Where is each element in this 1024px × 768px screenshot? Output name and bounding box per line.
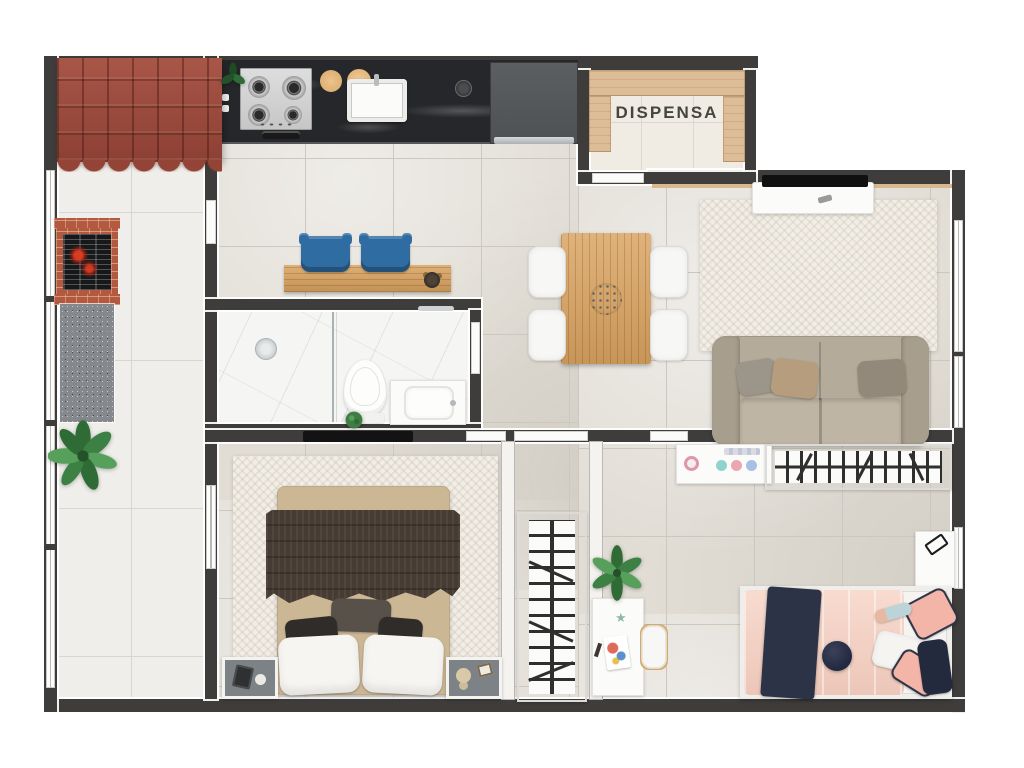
pantry-label: DISPENSA <box>589 96 745 130</box>
pantry-shelf-top <box>589 70 745 96</box>
wardrobe-rack-vertical <box>517 512 587 702</box>
desk-chair <box>641 625 667 669</box>
dining-chair <box>528 309 566 361</box>
makeup-item-pink <box>731 460 742 471</box>
nightstand-basket <box>456 668 471 683</box>
oven-handle <box>262 131 300 139</box>
wall-pantry-left <box>578 70 589 172</box>
bar-decor <box>424 272 440 288</box>
table-centerpiece <box>590 283 622 315</box>
towel-bar <box>418 306 454 311</box>
makeup-item-teal <box>716 460 727 471</box>
hanger-bar <box>856 453 873 481</box>
sofa-pillow <box>770 357 820 399</box>
bed2-throw <box>760 586 822 699</box>
sofa-back-seam <box>819 342 821 400</box>
desk-plant <box>588 544 646 602</box>
makeup-bottles <box>724 448 760 455</box>
bathroom-faucet <box>450 400 456 406</box>
nightstand-cup <box>255 674 266 685</box>
door-bedroom2 <box>650 431 688 441</box>
dining-chair <box>650 246 688 298</box>
hanger-bar <box>528 560 573 582</box>
bed2-pom <box>822 641 852 671</box>
bed-blanket <box>266 510 460 606</box>
makeup-vanity <box>676 444 772 484</box>
gas-cooktop <box>240 68 312 130</box>
bed-pillow <box>278 634 361 696</box>
shower-glass <box>332 312 334 422</box>
bathroom-sink <box>404 386 454 420</box>
dining-chair <box>650 309 688 361</box>
makeup-item-blue <box>746 460 757 471</box>
hanger-bar <box>528 620 573 642</box>
refrigerator <box>490 62 578 144</box>
wall-closet-left <box>502 442 514 699</box>
magazine <box>603 634 631 670</box>
window-bedroom2-right <box>954 527 963 589</box>
door-bathroom <box>471 322 480 374</box>
door-master-bedroom <box>466 431 506 441</box>
spice-bowl <box>455 80 472 97</box>
hanger-bar <box>796 453 813 481</box>
refrigerator-handle <box>494 137 574 144</box>
bar-stool <box>301 236 350 272</box>
shower-head <box>255 338 277 360</box>
light-switches <box>222 94 229 101</box>
floor-plan-render: DISPENSA <box>0 0 1024 768</box>
grill-grate <box>63 234 111 290</box>
dining-chair <box>528 246 566 298</box>
star-decor: ★ <box>615 610 627 626</box>
wall-bottom <box>44 699 965 712</box>
burner <box>248 76 270 98</box>
cooktop-knobs <box>258 122 294 127</box>
cutting-board <box>320 70 342 92</box>
sink-faucet <box>374 74 379 86</box>
sofa-seat-cushions <box>740 398 901 444</box>
sofa-pillow <box>857 358 907 397</box>
wardrobe-rack-horizontal <box>765 444 952 490</box>
bathroom-plant <box>344 410 364 430</box>
vanity-mirror <box>684 456 699 471</box>
bar-stool <box>361 236 410 272</box>
nightstand <box>446 657 502 699</box>
door-pantry <box>592 173 644 183</box>
window-living-right-2 <box>954 356 963 428</box>
door-closet-hall <box>514 431 588 441</box>
living-tv <box>762 175 868 187</box>
door-service <box>206 200 216 244</box>
roof-scallop-edge <box>57 160 222 172</box>
hanger-bar <box>528 661 574 682</box>
living-rug <box>700 200 937 351</box>
wall-pantry-right <box>745 70 756 172</box>
hanger-bar <box>909 453 925 481</box>
burner <box>282 76 306 100</box>
bed-pillow <box>362 634 445 696</box>
window-living-right-1 <box>954 220 963 352</box>
window-left-mullion <box>46 544 55 550</box>
kitchen-plant <box>218 62 248 90</box>
granite-counter <box>60 304 114 422</box>
red-tile-roof <box>57 58 222 162</box>
window-bedroom-left <box>206 485 216 569</box>
bedroom-tv <box>303 431 413 442</box>
monstera-plant <box>48 410 118 502</box>
sofa-arm <box>712 336 740 446</box>
